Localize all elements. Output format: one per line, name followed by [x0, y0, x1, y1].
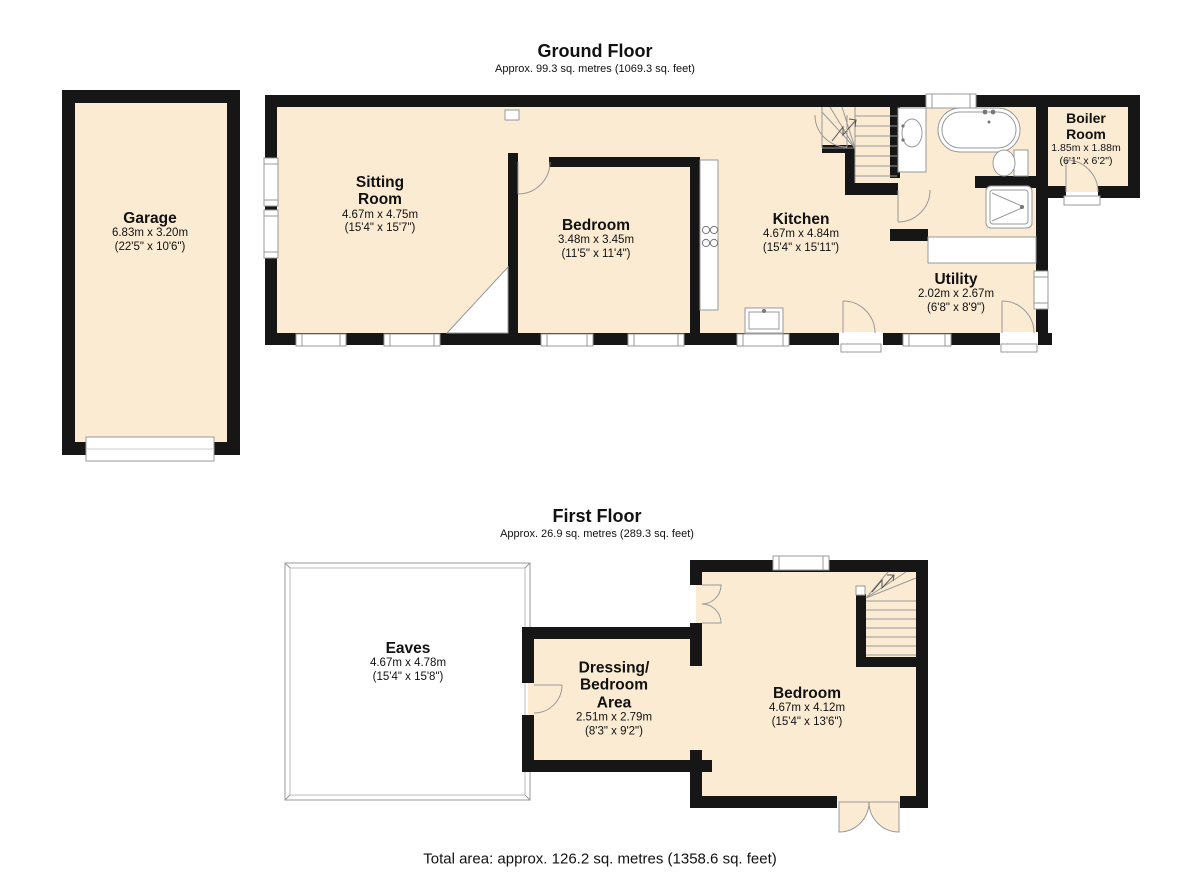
basin — [898, 108, 926, 172]
room-metric-utility: 2.02m x 2.67m — [918, 288, 994, 302]
room-label-first-bedroom: Bedroom 4.67m x 4.12m (15'4" x 13'6") — [769, 685, 845, 729]
room-imperial-garage: (22'5" x 10'6") — [112, 241, 188, 255]
room-name-garage: Garage — [112, 210, 188, 227]
room-name-first-bedroom: Bedroom — [769, 685, 845, 702]
room-imperial-sitting-room: (15'4" x 15'7") — [342, 222, 418, 236]
total-area-text: Total area: approx. 126.2 sq. metres (13… — [423, 851, 777, 868]
ground-floor-title: Ground Floor — [495, 42, 695, 62]
room-label-dressing-area: Dressing/ Bedroom Area 2.51m x 2.79m (8'… — [576, 659, 652, 738]
room-label-garage: Garage 6.83m x 3.20m (22'5" x 10'6") — [112, 210, 188, 254]
room-label-kitchen: Kitchen 4.67m x 4.84m (15'4" x 15'11") — [763, 211, 839, 255]
room-name-eaves: Eaves — [370, 640, 446, 657]
room-metric-dressing-area: 2.51m x 2.79m — [576, 711, 652, 725]
room-metric-boiler-room: 1.85m x 1.88m — [1051, 142, 1120, 154]
kitchen-counter-hob — [700, 160, 718, 310]
room-name-ground-bedroom: Bedroom — [558, 217, 634, 234]
room-imperial-utility: (6'8" x 8'9") — [918, 302, 994, 316]
room-label-boiler-room: Boiler Room 1.85m x 1.88m (6'1" x 6'2") — [1051, 111, 1120, 167]
room-metric-eaves: 4.67m x 4.78m — [370, 657, 446, 671]
room-label-utility: Utility 2.02m x 2.67m (6'8" x 8'9") — [918, 271, 994, 315]
kitchen-sink — [745, 308, 783, 333]
room-imperial-first-bedroom: (15'4" x 13'6") — [769, 716, 845, 730]
room-imperial-eaves: (15'4" x 15'8") — [370, 671, 446, 685]
room-label-ground-bedroom: Bedroom 3.48m x 3.45m (11'5" x 11'4") — [558, 217, 634, 261]
room-metric-garage: 6.83m x 3.20m — [112, 227, 188, 241]
room-imperial-dressing-area: (8'3" x 9'2") — [576, 725, 652, 739]
bathtub — [938, 108, 1020, 152]
floorplan-canvas — [0, 0, 1200, 873]
room-name-dressing-area: Dressing/ Bedroom Area — [576, 659, 652, 711]
shower — [986, 186, 1032, 228]
garage-door — [86, 437, 214, 461]
room-imperial-boiler-room: (6'1" x 6'2") — [1051, 155, 1120, 167]
room-metric-first-bedroom: 4.67m x 4.12m — [769, 702, 845, 716]
room-name-kitchen: Kitchen — [763, 211, 839, 228]
first-floor-header: First Floor Approx. 26.9 sq. metres (289… — [500, 507, 694, 542]
room-metric-sitting-room: 4.67m x 4.75m — [342, 209, 418, 223]
ground-floor-subtitle: Approx. 99.3 sq. metres (1069.3 sq. feet… — [495, 62, 695, 77]
first-floor-subtitle: Approx. 26.9 sq. metres (289.3 sq. feet) — [500, 527, 694, 542]
room-metric-ground-bedroom: 3.48m x 3.45m — [558, 234, 634, 248]
first-floor-title: First Floor — [500, 507, 694, 527]
room-name-sitting-room: Sitting Room — [342, 174, 418, 209]
floorplan-page: Ground Floor Approx. 99.3 sq. metres (10… — [0, 0, 1200, 873]
ground-floor-header: Ground Floor Approx. 99.3 sq. metres (10… — [495, 42, 695, 77]
utility-counter — [928, 237, 1036, 263]
room-imperial-ground-bedroom: (11'5" x 11'4") — [558, 248, 634, 262]
room-metric-kitchen: 4.67m x 4.84m — [763, 228, 839, 242]
toilet — [993, 150, 1028, 176]
first-bedroom-window — [773, 556, 829, 570]
room-imperial-kitchen: (15'4" x 15'11") — [763, 242, 839, 256]
room-label-sitting-room: Sitting Room 4.67m x 4.75m (15'4" x 15'7… — [342, 174, 418, 236]
room-name-utility: Utility — [918, 271, 994, 288]
room-name-boiler-room: Boiler Room — [1051, 111, 1120, 142]
room-label-eaves: Eaves 4.67m x 4.78m (15'4" x 15'8") — [370, 640, 446, 684]
